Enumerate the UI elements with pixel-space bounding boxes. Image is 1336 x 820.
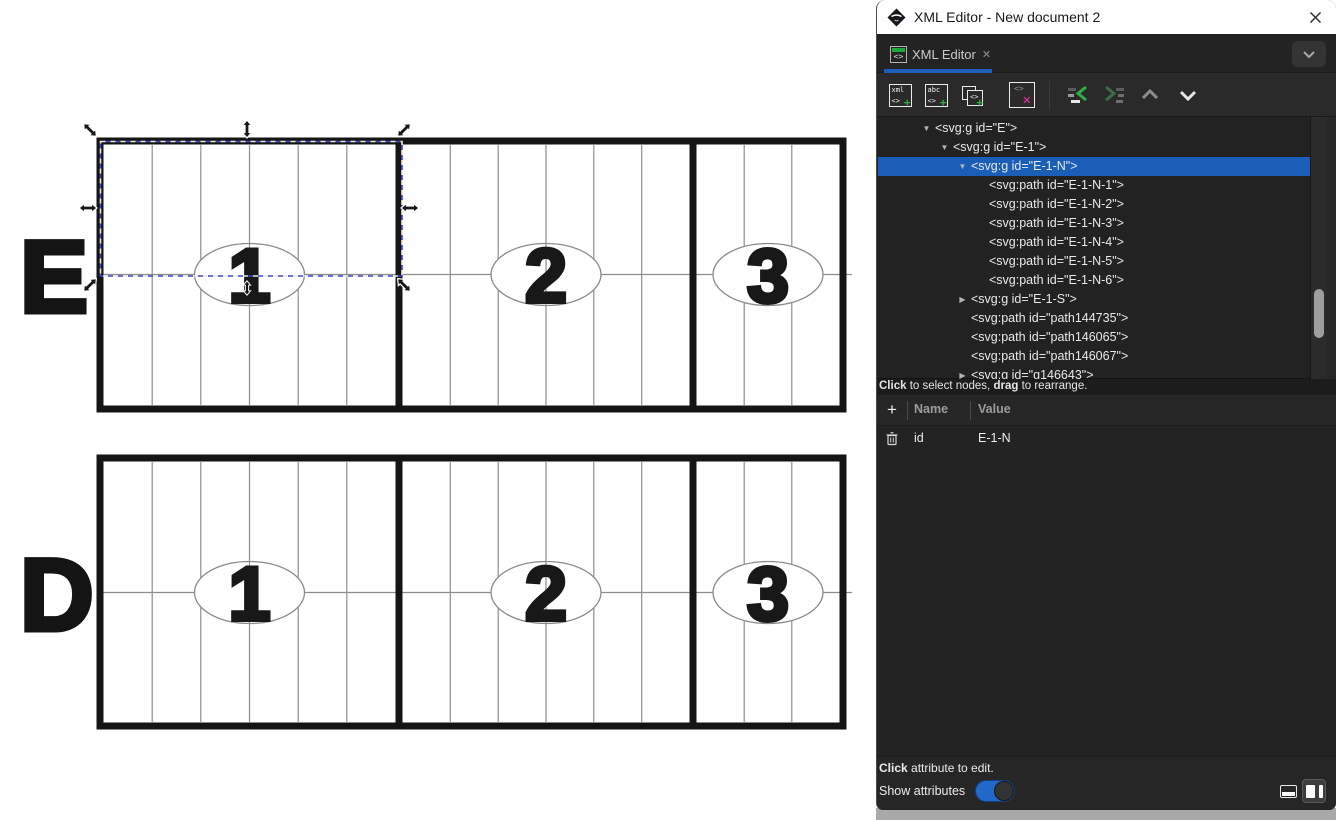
delete-node-button[interactable]: <> ✕ (1007, 80, 1037, 110)
section-number: 3 (747, 552, 789, 637)
tree-node-label: <svg:path id="path144735"> (971, 309, 1128, 328)
delete-node-icon: <> ✕ (1009, 82, 1035, 108)
xml-editor-dialog-column: XML Editor - New document 2 <> XML Edito… (876, 0, 1336, 820)
duplicate-node-button[interactable]: <> + (957, 80, 987, 110)
group-row-E[interactable]: E (20, 141, 852, 409)
unindent-node-icon (1066, 84, 1090, 106)
close-icon (1308, 10, 1323, 25)
tree-node-label: <svg:path id="E-1-N-6"> (989, 271, 1124, 290)
expand-arrow-icon[interactable]: ▶ (954, 290, 971, 309)
tree-node[interactable]: <svg:path id="path144735"> (878, 309, 1310, 328)
section-number: 1 (228, 552, 270, 637)
inkscape-logo-icon (887, 8, 906, 27)
layout-horizontal-button[interactable] (1276, 779, 1300, 803)
expand-arrow-icon[interactable]: ▶ (954, 366, 971, 379)
dialog-title: XML Editor - New document 2 (914, 9, 1100, 25)
tree-node[interactable]: <svg:path id="path146067"> (878, 347, 1310, 366)
tab-close-icon[interactable]: ✕ (982, 48, 991, 61)
show-attributes-toggle[interactable] (975, 780, 1015, 802)
toggle-knob (994, 781, 1014, 801)
attribute-row[interactable]: id E-1-N (877, 426, 1336, 452)
tree-node-label: <svg:path id="E-1-N-2"> (989, 195, 1124, 214)
tree-node[interactable]: <svg:path id="E-1-N-6"> (878, 271, 1310, 290)
tree-node[interactable]: <svg:path id="E-1-N-3"> (878, 214, 1310, 233)
dialog-tabbar: <> XML Editor ✕ (877, 34, 1336, 73)
xml-editor-dialog: XML Editor - New document 2 <> XML Edito… (876, 0, 1336, 810)
attributes-header: + Name Value (877, 395, 1336, 426)
tree-node[interactable]: <svg:path id="E-1-N-1"> (878, 176, 1310, 195)
toolbar-separator (1049, 81, 1050, 109)
xml-editor-tab-icon: <> (890, 46, 907, 63)
new-element-node-icon: xml <> + (889, 84, 912, 107)
horizontal-layout-icon (1280, 785, 1297, 798)
svg-drawing: E (0, 0, 876, 820)
column-separator (970, 401, 971, 420)
xml-tree-container: ▼<svg:g id="E">▼<svg:g id="E-1">▼<svg:g … (877, 117, 1336, 379)
close-window-button[interactable] (1304, 6, 1326, 28)
attributes-empty-area (877, 452, 1336, 756)
duplicate-node-icon: <> + (959, 82, 985, 108)
tree-node[interactable]: <svg:path id="E-1-N-2"> (878, 195, 1310, 214)
attr-column-name: Name (914, 402, 948, 416)
tree-node[interactable]: ▶<svg:g id="E-1-S"> (878, 290, 1310, 309)
attr-column-value: Value (978, 402, 1011, 416)
show-attributes-label: Show attributes (879, 784, 965, 798)
new-element-node-button[interactable]: xml <> + (885, 80, 915, 110)
tree-scrollbar[interactable] (1310, 117, 1327, 379)
group-row-D[interactable]: D (20, 458, 852, 726)
dialog-footer: Click attribute to edit. Show attributes (877, 756, 1336, 810)
delete-attribute-button[interactable] (885, 431, 899, 451)
xml-toolbar: xml <> + abc <> + <> (877, 73, 1336, 117)
tree-node-label: <svg:g id="g146643"> (971, 366, 1094, 379)
indent-node-icon (1102, 84, 1126, 106)
panel-edge-strip (1327, 117, 1336, 379)
tree-scrollbar-thumb[interactable] (1314, 289, 1324, 338)
tree-node-label: <svg:g id="E-1"> (953, 138, 1046, 157)
tree-node-label: <svg:path id="E-1-N-3"> (989, 214, 1124, 233)
xml-node-tree[interactable]: ▼<svg:g id="E">▼<svg:g id="E-1">▼<svg:g … (878, 117, 1310, 379)
tree-node-label: <svg:path id="E-1-N-5"> (989, 252, 1124, 271)
tree-node[interactable]: ▼<svg:g id="E"> (878, 119, 1310, 138)
vertical-layout-icon (1306, 785, 1323, 798)
panel-menu-button[interactable] (1292, 41, 1326, 67)
attribute-value[interactable]: E-1-N (978, 431, 1011, 445)
drawing-canvas[interactable]: E (0, 0, 876, 820)
scale-handle-top-center[interactable] (243, 120, 252, 138)
section-number: 2 (525, 552, 567, 637)
tree-node-label: <svg:path id="E-1-N-4"> (989, 233, 1124, 252)
chevron-down-icon (1176, 85, 1200, 105)
collapse-arrow-icon[interactable]: ▼ (954, 157, 971, 176)
tree-node[interactable]: <svg:path id="E-1-N-4"> (878, 233, 1310, 252)
trash-icon (885, 431, 899, 446)
tree-node[interactable]: ▶<svg:g id="g146643"> (878, 366, 1310, 379)
row-label-E: E (20, 220, 88, 334)
row-label-D: D (20, 538, 94, 652)
footer-controls: Show attributes (877, 778, 1336, 804)
collapse-arrow-icon[interactable]: ▼ (918, 119, 935, 138)
attribute-name[interactable]: id (914, 431, 924, 445)
scale-handle-right[interactable] (401, 204, 419, 213)
chevron-down-icon (1300, 46, 1318, 63)
tree-node-label: <svg:path id="path146065"> (971, 328, 1128, 347)
section-number: 2 (525, 234, 567, 319)
tab-xml-editor[interactable]: <> XML Editor ✕ (884, 39, 1000, 73)
new-text-node-icon: abc <> + (925, 84, 948, 107)
tree-node-label: <svg:g id="E-1-N"> (971, 157, 1078, 176)
move-node-down-button[interactable] (1173, 80, 1203, 110)
collapse-arrow-icon[interactable]: ▼ (936, 138, 953, 157)
layout-vertical-button[interactable] (1302, 779, 1326, 803)
tab-label: XML Editor (912, 47, 976, 62)
indent-node-button[interactable] (1099, 80, 1129, 110)
add-attribute-button[interactable]: + (879, 397, 905, 423)
tree-node[interactable]: ▼<svg:g id="E-1"> (878, 138, 1310, 157)
tree-hint-text: Click to select nodes, drag to rearrange… (877, 379, 1336, 395)
attribute-hint-text: Click attribute to edit. (877, 760, 1336, 778)
new-text-node-button[interactable]: abc <> + (921, 80, 951, 110)
tree-node[interactable]: <svg:path id="path146065"> (878, 328, 1310, 347)
tree-node-label: <svg:g id="E"> (935, 119, 1017, 138)
section-number: 3 (747, 234, 789, 319)
tree-node-label: <svg:g id="E-1-S"> (971, 290, 1077, 309)
unindent-node-button[interactable] (1063, 80, 1093, 110)
dialog-titlebar[interactable]: XML Editor - New document 2 (877, 0, 1336, 34)
scale-handle-left[interactable] (79, 204, 97, 213)
inkscape-app: E (0, 0, 1336, 820)
tree-node[interactable]: ▼<svg:g id="E-1-N"> (878, 157, 1310, 176)
scale-handle-top-left[interactable] (80, 120, 99, 139)
tree-node-label: <svg:path id="path146067"> (971, 347, 1128, 366)
tree-node[interactable]: <svg:path id="E-1-N-5"> (878, 252, 1310, 271)
chevron-up-icon (1138, 85, 1162, 105)
scale-handle-top-right[interactable] (394, 120, 413, 139)
tree-node-label: <svg:path id="E-1-N-1"> (989, 176, 1124, 195)
move-node-up-button[interactable] (1135, 80, 1165, 110)
column-separator (907, 401, 908, 420)
